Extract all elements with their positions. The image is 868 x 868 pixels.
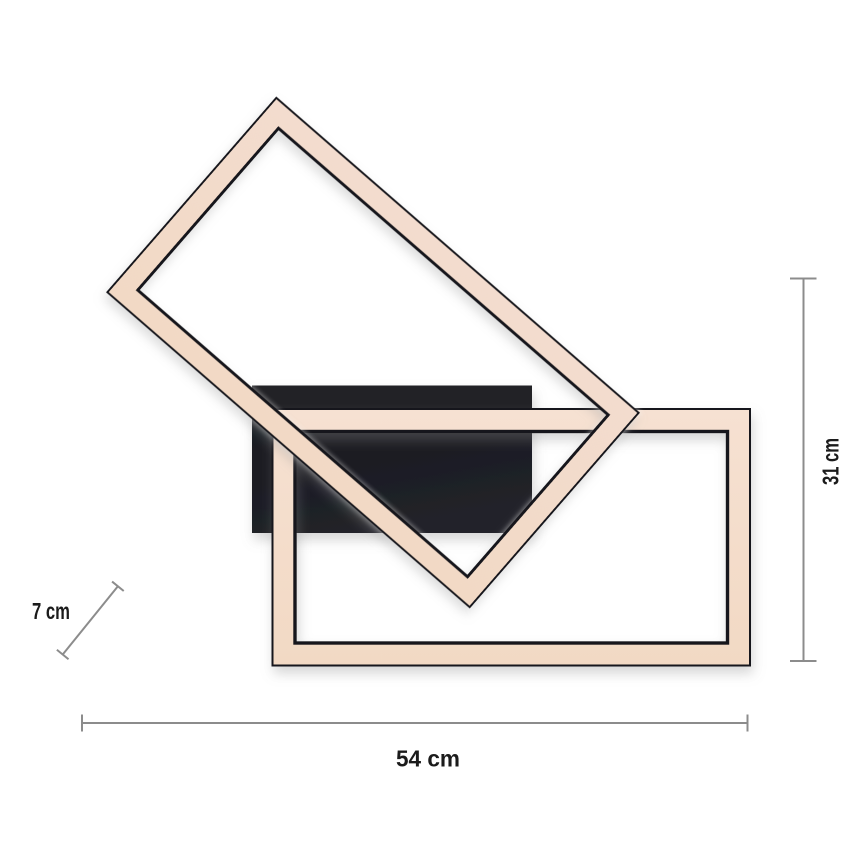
svg-text:7 cm: 7 cm bbox=[32, 598, 70, 624]
svg-text:31 cm: 31 cm bbox=[818, 438, 844, 485]
svg-text:54 cm: 54 cm bbox=[396, 746, 460, 772]
